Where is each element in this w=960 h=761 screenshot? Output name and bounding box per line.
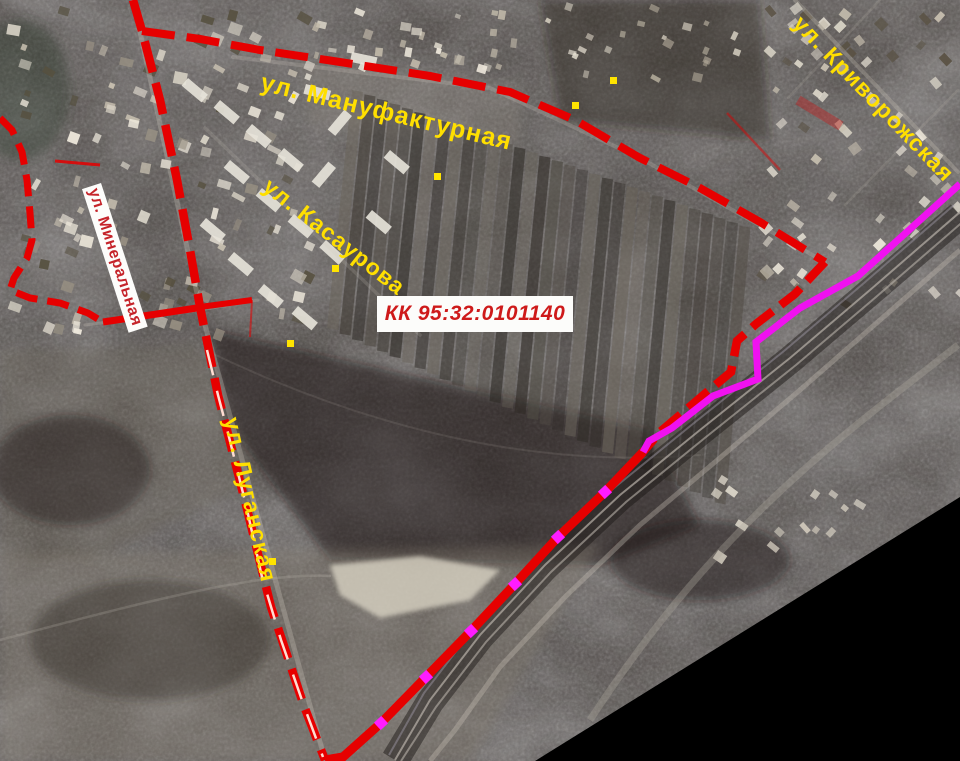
cadastral-map: ул. Мануфактурная ул. Касаурова ул. Крив…: [0, 0, 960, 761]
satellite-imagery: [0, 0, 960, 761]
cadastral-number: КК 95:32:0101140: [385, 302, 566, 326]
cadastral-number-plate: КК 95:32:0101140: [377, 296, 573, 332]
